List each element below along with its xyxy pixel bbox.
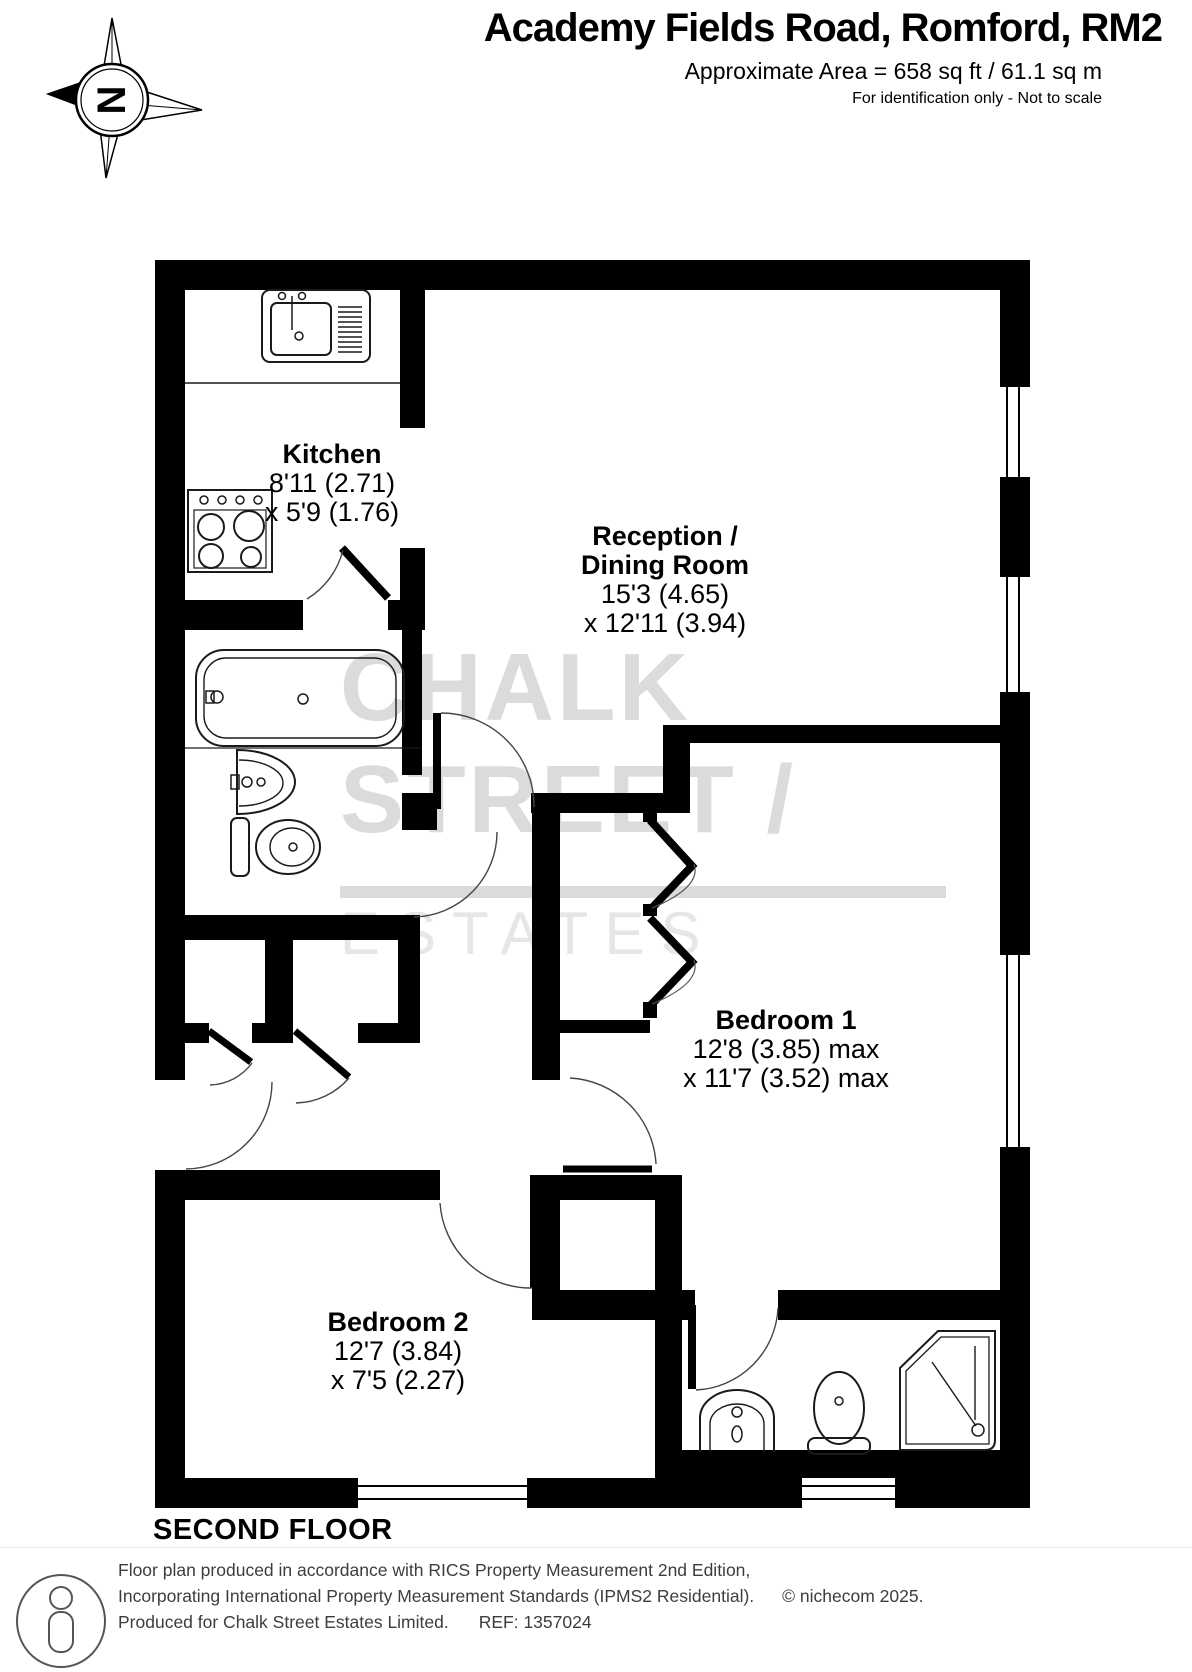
shower-icon	[900, 1331, 995, 1450]
reception-label: Reception / Dining Room 15'3 (4.65) x 12…	[581, 522, 749, 638]
bedroom1-label: Bedroom 1 12'8 (3.85) max x 11'7 (3.52) …	[683, 1006, 889, 1093]
kitchen-dim-2: x 5'9 (1.76)	[265, 498, 399, 527]
reception-name-2: Dining Room	[581, 551, 749, 580]
bedroom1-dim-1: 12'8 (3.85) max	[683, 1035, 889, 1064]
kitchen-label: Kitchen 8'11 (2.71) x 5'9 (1.76)	[265, 440, 399, 527]
bathroom-toilet-icon	[231, 818, 320, 876]
floorplan-page: Academy Fields Road, Romford, RM2 Approx…	[0, 0, 1192, 1672]
bedroom1-dim-2: x 11'7 (3.52) max	[683, 1064, 889, 1093]
stove-icon	[188, 490, 272, 572]
reception-name-1: Reception /	[581, 522, 749, 551]
kitchen-name: Kitchen	[265, 440, 399, 469]
floor-name-label: SECOND FLOOR	[153, 1514, 393, 1547]
bedroom2-name: Bedroom 2	[327, 1308, 468, 1337]
floorplan-drawing	[0, 0, 1192, 1672]
reception-dim-2: x 12'11 (3.94)	[581, 609, 749, 638]
bedroom2-dim-1: 12'7 (3.84)	[327, 1337, 468, 1366]
kitchen-sink-unit	[262, 290, 370, 362]
kitchen-dim-1: 8'11 (2.71)	[265, 469, 399, 498]
bathtub-icon	[196, 650, 404, 746]
ensuite-basin-icon	[700, 1390, 774, 1452]
bedroom2-label: Bedroom 2 12'7 (3.84) x 7'5 (2.27)	[327, 1308, 468, 1395]
reception-dim-1: 15'3 (4.65)	[581, 580, 749, 609]
bathroom-basin-icon	[231, 750, 295, 814]
bedroom1-name: Bedroom 1	[683, 1006, 889, 1035]
ensuite-toilet-icon	[808, 1372, 870, 1454]
bedroom2-dim-2: x 7'5 (2.27)	[327, 1366, 468, 1395]
